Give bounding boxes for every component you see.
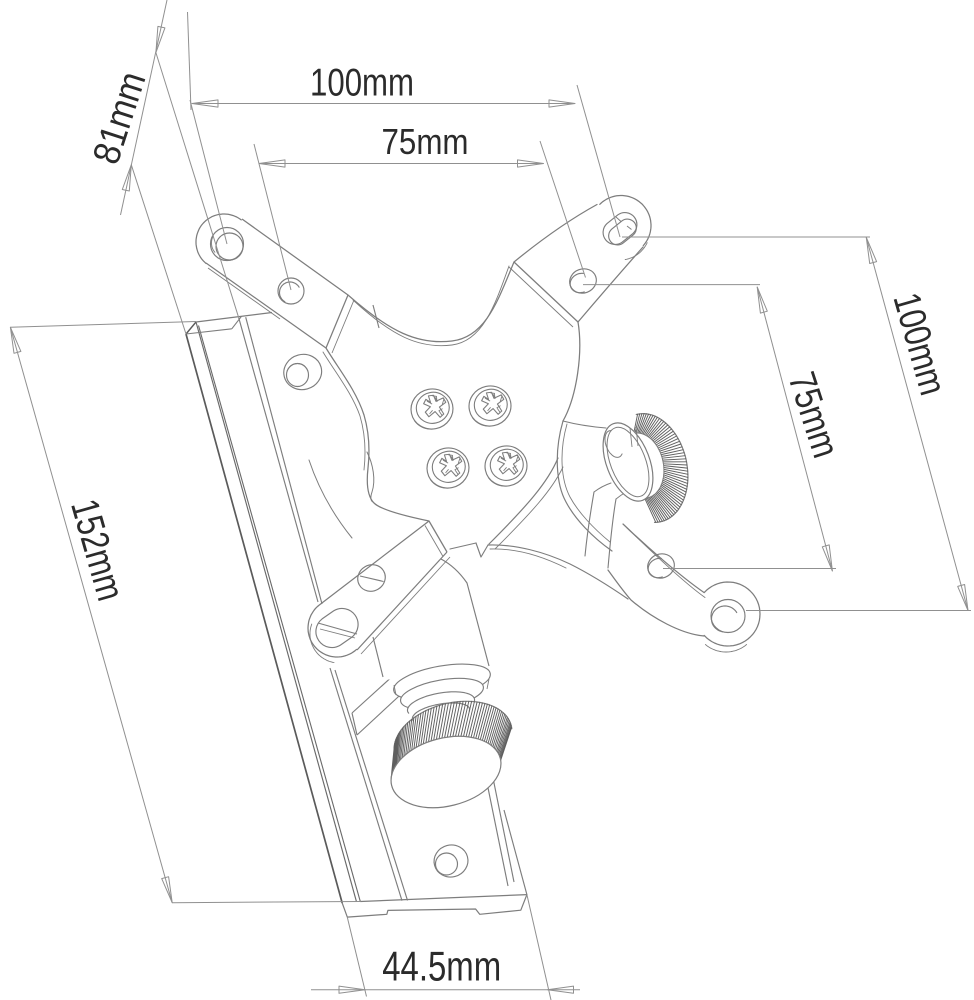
svg-text:44.5mm: 44.5mm xyxy=(382,943,501,990)
svg-text:100mm: 100mm xyxy=(310,62,414,105)
svg-text:75mm: 75mm xyxy=(382,121,469,162)
